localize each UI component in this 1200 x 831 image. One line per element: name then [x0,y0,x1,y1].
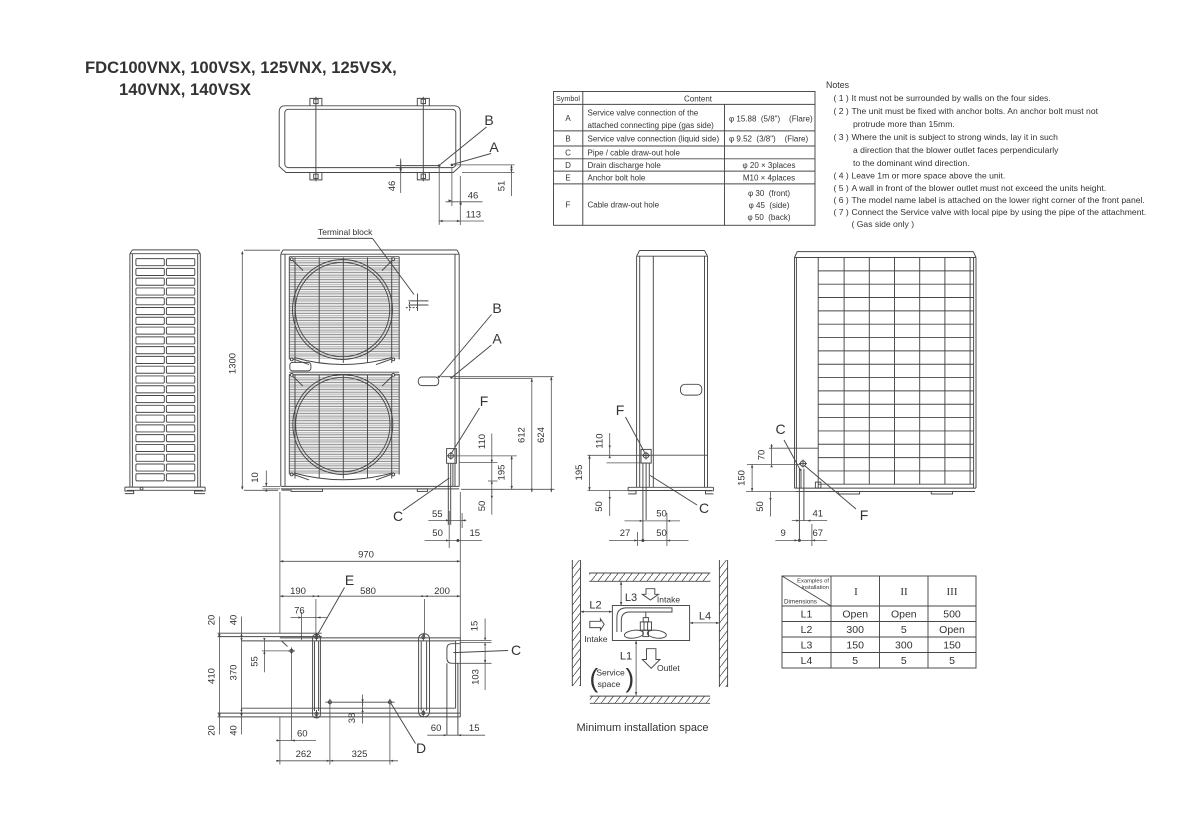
svg-text:1300: 1300 [227,353,238,374]
svg-text:to the dominant wind direction: to the dominant wind direction. [853,158,970,168]
svg-text:46: 46 [468,191,479,202]
svg-text:15: 15 [469,723,480,734]
svg-text:300: 300 [846,624,864,636]
svg-text:C: C [699,500,709,516]
svg-text:370: 370 [229,665,240,681]
svg-text:624: 624 [536,427,547,443]
svg-text:C: C [393,508,403,524]
svg-text:φ 45 (side): φ 45 (side) [749,201,790,210]
svg-text:15: 15 [470,621,481,632]
svg-text:Pipe / cable draw-out hole: Pipe / cable draw-out hole [588,149,681,158]
svg-text:space: space [598,679,621,689]
svg-text:Open: Open [939,624,965,636]
svg-text:B: B [484,112,493,128]
svg-text:Content: Content [684,95,713,104]
svg-text:Dimensions: Dimensions [784,599,817,606]
svg-text:500: 500 [943,608,961,620]
svg-text:Service valve connection (liqu: Service valve connection (liquid side) [588,135,720,144]
svg-text:L4: L4 [801,655,813,667]
svg-text:B: B [565,135,570,144]
svg-text:38: 38 [347,713,358,724]
svg-text:Examples of: Examples of [797,579,829,585]
svg-text:50: 50 [656,528,667,539]
svg-text:41: 41 [813,509,824,520]
svg-text:( 7 ): ( 7 ) [834,207,849,217]
svg-text:A: A [489,139,499,155]
svg-text:L2: L2 [589,600,601,612]
svg-text:55: 55 [249,656,260,667]
svg-text:L3: L3 [625,592,637,604]
svg-text:Cable draw-out hole: Cable draw-out hole [588,201,660,210]
svg-text:It must not be surrounded by w: It must not be surrounded by walls on th… [852,93,1051,103]
svg-text:Connect the Service valve with: Connect the Service valve with local pip… [852,207,1147,217]
svg-text:150: 150 [737,470,748,486]
svg-text:140VNX, 140VSX: 140VNX, 140VSX [119,80,251,99]
svg-text:protrude more than 15mm.: protrude more than 15mm. [853,119,955,129]
svg-text:Minimum installation space: Minimum installation space [577,722,709,734]
svg-text:51: 51 [496,181,507,192]
svg-text:φ 20 × 3places: φ 20 × 3places [743,161,796,170]
svg-text:Where the unit is subject to s: Where the unit is subject to strong wind… [852,132,1059,142]
svg-text:Drain discharge hole: Drain discharge hole [588,161,662,170]
svg-text:50: 50 [432,528,443,539]
svg-text:φ 9.52 (3/8") (Flare): φ 9.52 (3/8") (Flare) [729,135,808,144]
svg-text:C: C [565,149,571,158]
svg-text:a direction that the blower ou: a direction that the blower outlet faces… [853,145,1059,155]
svg-text:E: E [565,174,570,183]
svg-text:The unit must be fixed with an: The unit must be fixed with anchor bolts… [852,106,1099,116]
svg-text:The model name label is attach: The model name label is attached on the … [852,195,1145,205]
svg-text:Open: Open [891,608,917,620]
svg-text:): ) [626,663,635,693]
svg-text:A: A [492,331,502,347]
svg-text:L4: L4 [699,611,711,623]
svg-text:F: F [480,393,489,409]
svg-text:110: 110 [595,433,606,448]
svg-text:( 6 ): ( 6 ) [834,195,849,205]
svg-text:installation: installation [802,585,829,591]
svg-text:300: 300 [895,639,913,651]
svg-text:Outlet: Outlet [657,663,680,673]
svg-text:Service: Service [596,668,625,678]
svg-text:I: I [854,586,858,598]
svg-text:67: 67 [813,528,824,539]
svg-text:5: 5 [949,655,955,667]
svg-text:C: C [775,421,785,437]
svg-text:D: D [565,161,571,170]
svg-text:5: 5 [901,655,907,667]
svg-text:Symbol: Symbol [556,94,580,103]
svg-text:II: II [900,586,908,598]
svg-text:40: 40 [229,725,240,736]
svg-text:C: C [511,642,521,658]
svg-text:50: 50 [594,501,605,512]
svg-text:410: 410 [207,668,218,684]
svg-text:L2: L2 [801,624,813,636]
svg-text:Open: Open [842,608,868,620]
svg-text:( 5 ): ( 5 ) [834,183,849,193]
svg-text:Leave 1m or more space above t: Leave 1m or more space above the unit. [852,171,1006,181]
svg-text:Service valve connection of th: Service valve connection of the [588,109,699,118]
svg-text:F: F [566,201,571,210]
svg-text:195: 195 [574,465,585,481]
svg-text:20: 20 [206,615,217,626]
svg-text:( 4 ): ( 4 ) [834,171,849,181]
svg-text:20: 20 [206,725,217,736]
svg-text:Anchor bolt hole: Anchor bolt hole [588,174,646,183]
svg-text:III: III [947,586,958,598]
svg-text:970: 970 [358,550,374,561]
svg-text:110: 110 [477,434,488,449]
svg-text:40: 40 [229,615,240,626]
svg-text:( 2 ): ( 2 ) [834,106,849,116]
svg-text:325: 325 [352,749,368,760]
svg-text:E: E [345,572,354,588]
svg-text:50: 50 [477,501,488,512]
svg-text:580: 580 [360,586,376,597]
svg-text:5: 5 [901,624,907,636]
svg-text:150: 150 [846,639,864,651]
svg-text:FDC100VNX, 100VSX, 125VNX, 125: FDC100VNX, 100VSX, 125VNX, 125VSX, [85,58,397,77]
svg-text:76: 76 [294,606,305,617]
svg-text:190: 190 [290,586,306,597]
svg-text:A wall in front of the blower: A wall in front of the blower outlet mus… [852,183,1107,193]
svg-text:9: 9 [781,528,786,539]
svg-text:10: 10 [250,472,261,483]
svg-text:Intake: Intake [584,634,607,644]
svg-text:L3: L3 [801,639,813,651]
svg-text:( 3 ): ( 3 ) [834,132,849,142]
svg-text:L1: L1 [801,608,813,620]
svg-text:60: 60 [297,729,308,740]
svg-text:46: 46 [387,181,398,192]
svg-text:27: 27 [620,528,631,539]
svg-text:Intake: Intake [657,595,680,605]
svg-text:200: 200 [434,586,450,597]
svg-text:M10 × 4places: M10 × 4places [743,174,795,183]
svg-text:50: 50 [656,509,667,520]
svg-text:5: 5 [852,655,858,667]
svg-text:60: 60 [431,723,442,734]
svg-text:Notes: Notes [826,80,850,90]
svg-text:A: A [565,114,571,123]
svg-text:195: 195 [497,465,508,481]
svg-text:F: F [616,402,625,418]
svg-text:Terminal block: Terminal block [318,227,373,237]
svg-text:L1: L1 [620,651,632,663]
svg-text:55: 55 [432,509,443,520]
svg-text:262: 262 [296,749,312,760]
svg-text:50: 50 [755,501,766,512]
svg-text:15: 15 [470,528,481,539]
svg-text:φ 30 (front): φ 30 (front) [748,189,790,198]
svg-text:B: B [492,300,501,316]
svg-text:φ 15.88 (5/8") (Flare): φ 15.88 (5/8") (Flare) [729,115,813,124]
svg-text:113: 113 [466,210,481,221]
svg-text:D: D [416,740,426,756]
svg-text:( Gas side only ): ( Gas side only ) [852,219,915,229]
svg-text:612: 612 [517,427,528,443]
svg-text:( 1 ): ( 1 ) [834,93,849,103]
svg-text:attached connecting pipe (gas: attached connecting pipe (gas side) [588,121,715,130]
svg-text:150: 150 [943,639,961,651]
svg-text:103: 103 [470,669,481,685]
svg-text:70: 70 [756,450,767,461]
svg-text:F: F [860,507,869,523]
svg-text:φ 50 (back): φ 50 (back) [748,213,791,222]
